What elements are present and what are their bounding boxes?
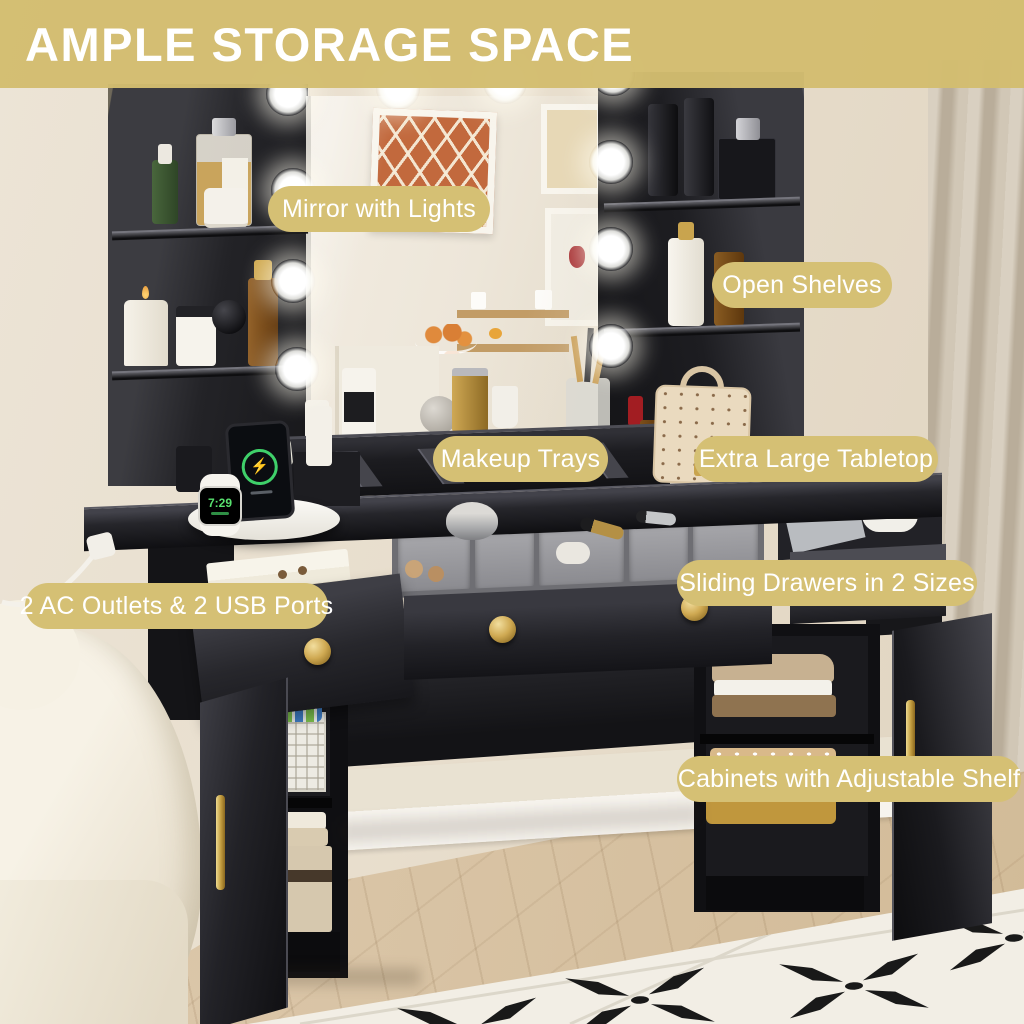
square-perfume-dark (718, 138, 776, 200)
mirror-bulb (589, 140, 633, 184)
round-silver-jar (446, 502, 498, 540)
folder-button (278, 570, 287, 579)
watch-subline (211, 512, 229, 515)
cream-jar (204, 188, 248, 228)
gold-perfume-bottle (452, 368, 488, 432)
callout-cabinets-shelf: Cabinets with Adjustable Shelf (677, 756, 1021, 802)
callout-mirror-with-lights: Mirror with Lights (268, 186, 490, 232)
mirror-bulb (271, 259, 315, 303)
serum-bottle-green (152, 160, 178, 224)
candle-flame (142, 286, 149, 299)
rolled-towel-small (556, 542, 590, 564)
black-spray-bottle-2 (684, 98, 714, 196)
charging-bolt-icon: ⚡ (250, 458, 270, 474)
dropper-cap (158, 144, 172, 164)
callout-open-shelves: Open Shelves (712, 262, 892, 308)
smart-watch: 7:29 (198, 486, 242, 526)
callout-sliding-drawers: Sliding Drawers in 2 Sizes (677, 560, 977, 606)
white-pump-top (678, 222, 694, 240)
door-handle-left (216, 795, 225, 890)
page-title: AMPLE STORAGE SPACE (0, 17, 634, 72)
cabinet-right-shelf (700, 734, 874, 744)
candle (124, 300, 168, 366)
product-photo-vanity-desk: ⚡ 7:29 AMPLE STORAGE SPACE Mirror with L… (0, 0, 1024, 1024)
folded-towel-brown (712, 695, 836, 717)
white-bottle-on-box (306, 406, 332, 466)
charging-ring: ⚡ (240, 447, 278, 485)
drawer-knob (304, 638, 331, 665)
sofa-seat (0, 880, 188, 1024)
perfume-cap-silver (212, 118, 236, 136)
makeup-compact (428, 566, 444, 582)
lotion-jar-black-lid (176, 306, 216, 366)
mirror-bulb (589, 227, 633, 271)
mirror-bulb (589, 324, 633, 368)
black-label (344, 392, 374, 422)
square-perfume-cap (736, 118, 760, 140)
title-banner: AMPLE STORAGE SPACE (0, 0, 1024, 88)
drawer-knob (489, 616, 516, 643)
black-spray-bottle-1 (648, 104, 678, 196)
amber-serum-cap (254, 260, 272, 280)
mirror-bulb (275, 347, 319, 391)
watch-time: 7:29 (208, 497, 232, 509)
white-tube (492, 386, 518, 428)
callout-outlets-usb: 2 AC Outlets & 2 USB Ports (25, 583, 328, 629)
callout-makeup-trays: Makeup Trays (433, 436, 608, 482)
cabinet-door-left (200, 677, 288, 1024)
callout-extra-large-tabletop: Extra Large Tabletop (694, 436, 938, 482)
white-pump-bottle-shelf (668, 238, 704, 326)
round-perfume-black (212, 300, 246, 334)
charging-label-line (250, 490, 272, 495)
cabinet-right-plinth (706, 876, 864, 910)
folder-button (298, 566, 307, 575)
makeup-compact (405, 560, 423, 578)
